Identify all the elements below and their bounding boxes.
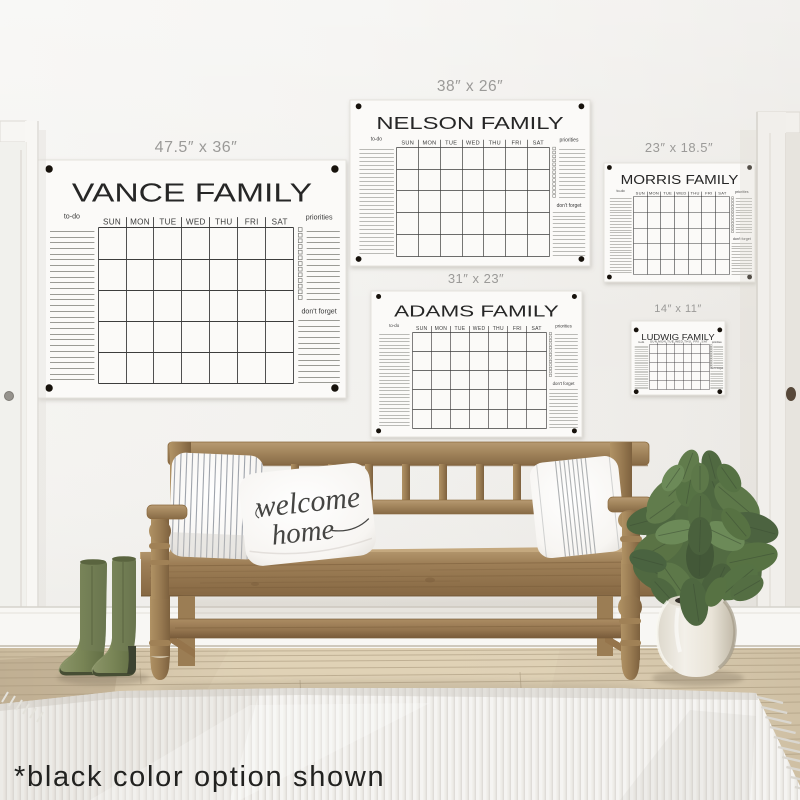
svg-text:SAT: SAT [531,326,541,332]
svg-text:SAT: SAT [533,140,545,146]
svg-text:priorities: priorities [306,214,333,222]
svg-text:to-do: to-do [389,323,400,328]
svg-text:priorities: priorities [560,138,579,144]
svg-text:ADAMS FAMILY: ADAMS FAMILY [394,304,559,321]
svg-text:VANCE FAMILY: VANCE FAMILY [72,180,312,208]
svg-text:don't forget: don't forget [301,308,336,316]
svg-text:THU: THU [684,339,691,343]
svg-text:home: home [270,513,336,551]
svg-text:SUN: SUN [650,339,657,343]
svg-text:TUE: TUE [159,217,176,226]
svg-text:TUE: TUE [667,339,674,343]
svg-text:priorities: priorities [555,324,572,329]
svg-text:TUE: TUE [663,190,672,195]
svg-text:MON: MON [423,140,437,146]
svg-text:don't forget: don't forget [557,203,582,209]
svg-text:THU: THU [215,217,233,226]
svg-text:FRI: FRI [513,326,522,332]
svg-text:23″ x 18.5″: 23″ x 18.5″ [645,140,713,155]
svg-text:SUN: SUN [401,140,414,146]
svg-text:don't forget: don't forget [553,381,576,386]
svg-text:FRI: FRI [512,140,522,146]
svg-text:SUN: SUN [636,190,645,195]
svg-text:TUE: TUE [445,140,457,146]
svg-text:WED: WED [473,326,486,332]
svg-text:SAT: SAT [718,190,727,195]
svg-text:don't forget: don't forget [710,366,723,370]
svg-text:MON: MON [435,326,448,332]
svg-text:THU: THU [691,190,700,195]
svg-text:14″ x 11″: 14″ x 11″ [654,303,702,315]
svg-text:to-do: to-do [64,212,80,220]
svg-text:MORRIS FAMILY: MORRIS FAMILY [621,173,739,187]
svg-text:SAT: SAT [702,339,709,343]
svg-text:FRI: FRI [693,339,699,343]
svg-text:THU: THU [493,326,504,332]
svg-text:FRI: FRI [245,217,259,226]
svg-text:SAT: SAT [272,217,288,226]
svg-text:47.5″ x 36″: 47.5″ x 36″ [155,139,238,156]
svg-text:to-do: to-do [638,340,644,344]
svg-text:priorities: priorities [712,340,723,344]
svg-text:to-do: to-do [371,137,383,143]
svg-text:WED: WED [186,217,206,226]
svg-text:to-do: to-do [616,189,624,193]
svg-text:SUN: SUN [416,326,428,332]
svg-text:MON: MON [658,339,666,343]
svg-text:WED: WED [675,339,683,343]
svg-text:MON: MON [130,217,150,226]
svg-text:FRI: FRI [705,190,712,195]
svg-text:MON: MON [649,190,659,195]
svg-text:38″ x 26″: 38″ x 26″ [437,78,503,95]
svg-text:TUE: TUE [455,326,466,332]
svg-text:WED: WED [676,190,686,195]
svg-text:*black color option shown: *black color option shown [14,761,385,793]
svg-text:THU: THU [489,140,501,146]
svg-text:SUN: SUN [103,217,121,226]
svg-text:31″ x 23″: 31″ x 23″ [448,271,504,286]
svg-text:WED: WED [466,140,480,146]
svg-text:NELSON FAMILY: NELSON FAMILY [376,113,563,133]
